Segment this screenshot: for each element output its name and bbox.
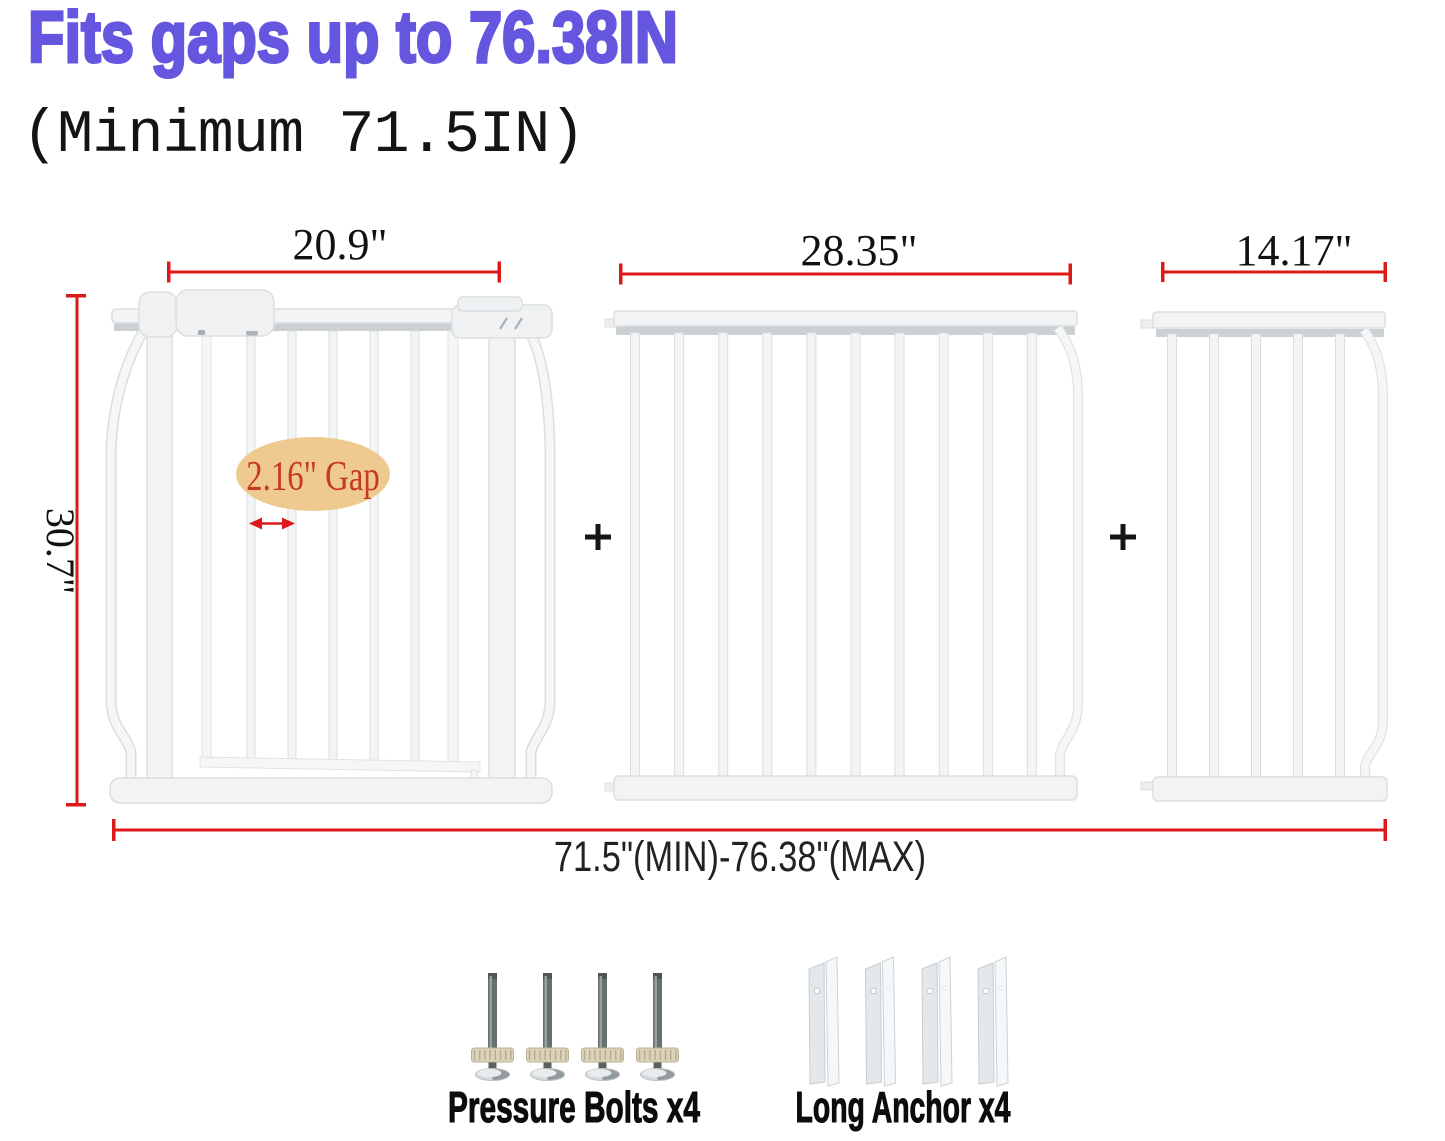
svg-text:71.5"(MIN)-76.38"(MAX): 71.5"(MIN)-76.38"(MAX) bbox=[554, 833, 926, 880]
svg-text:14.17": 14.17" bbox=[1236, 226, 1353, 275]
svg-text:Long Anchor x4: Long Anchor x4 bbox=[796, 1082, 1011, 1132]
svg-text:2.16" Gap: 2.16" Gap bbox=[246, 453, 379, 500]
svg-text:(Minimum 71.5IN): (Minimum 71.5IN) bbox=[22, 102, 585, 170]
svg-text:20.9": 20.9" bbox=[293, 220, 388, 269]
svg-text:28.35": 28.35" bbox=[801, 226, 918, 275]
svg-text:Fits gaps up to 76.38IN: Fits gaps up to 76.38IN bbox=[28, 0, 678, 78]
svg-text:30.7": 30.7" bbox=[38, 508, 83, 594]
svg-text:Pressure Bolts x4: Pressure Bolts x4 bbox=[448, 1082, 700, 1131]
